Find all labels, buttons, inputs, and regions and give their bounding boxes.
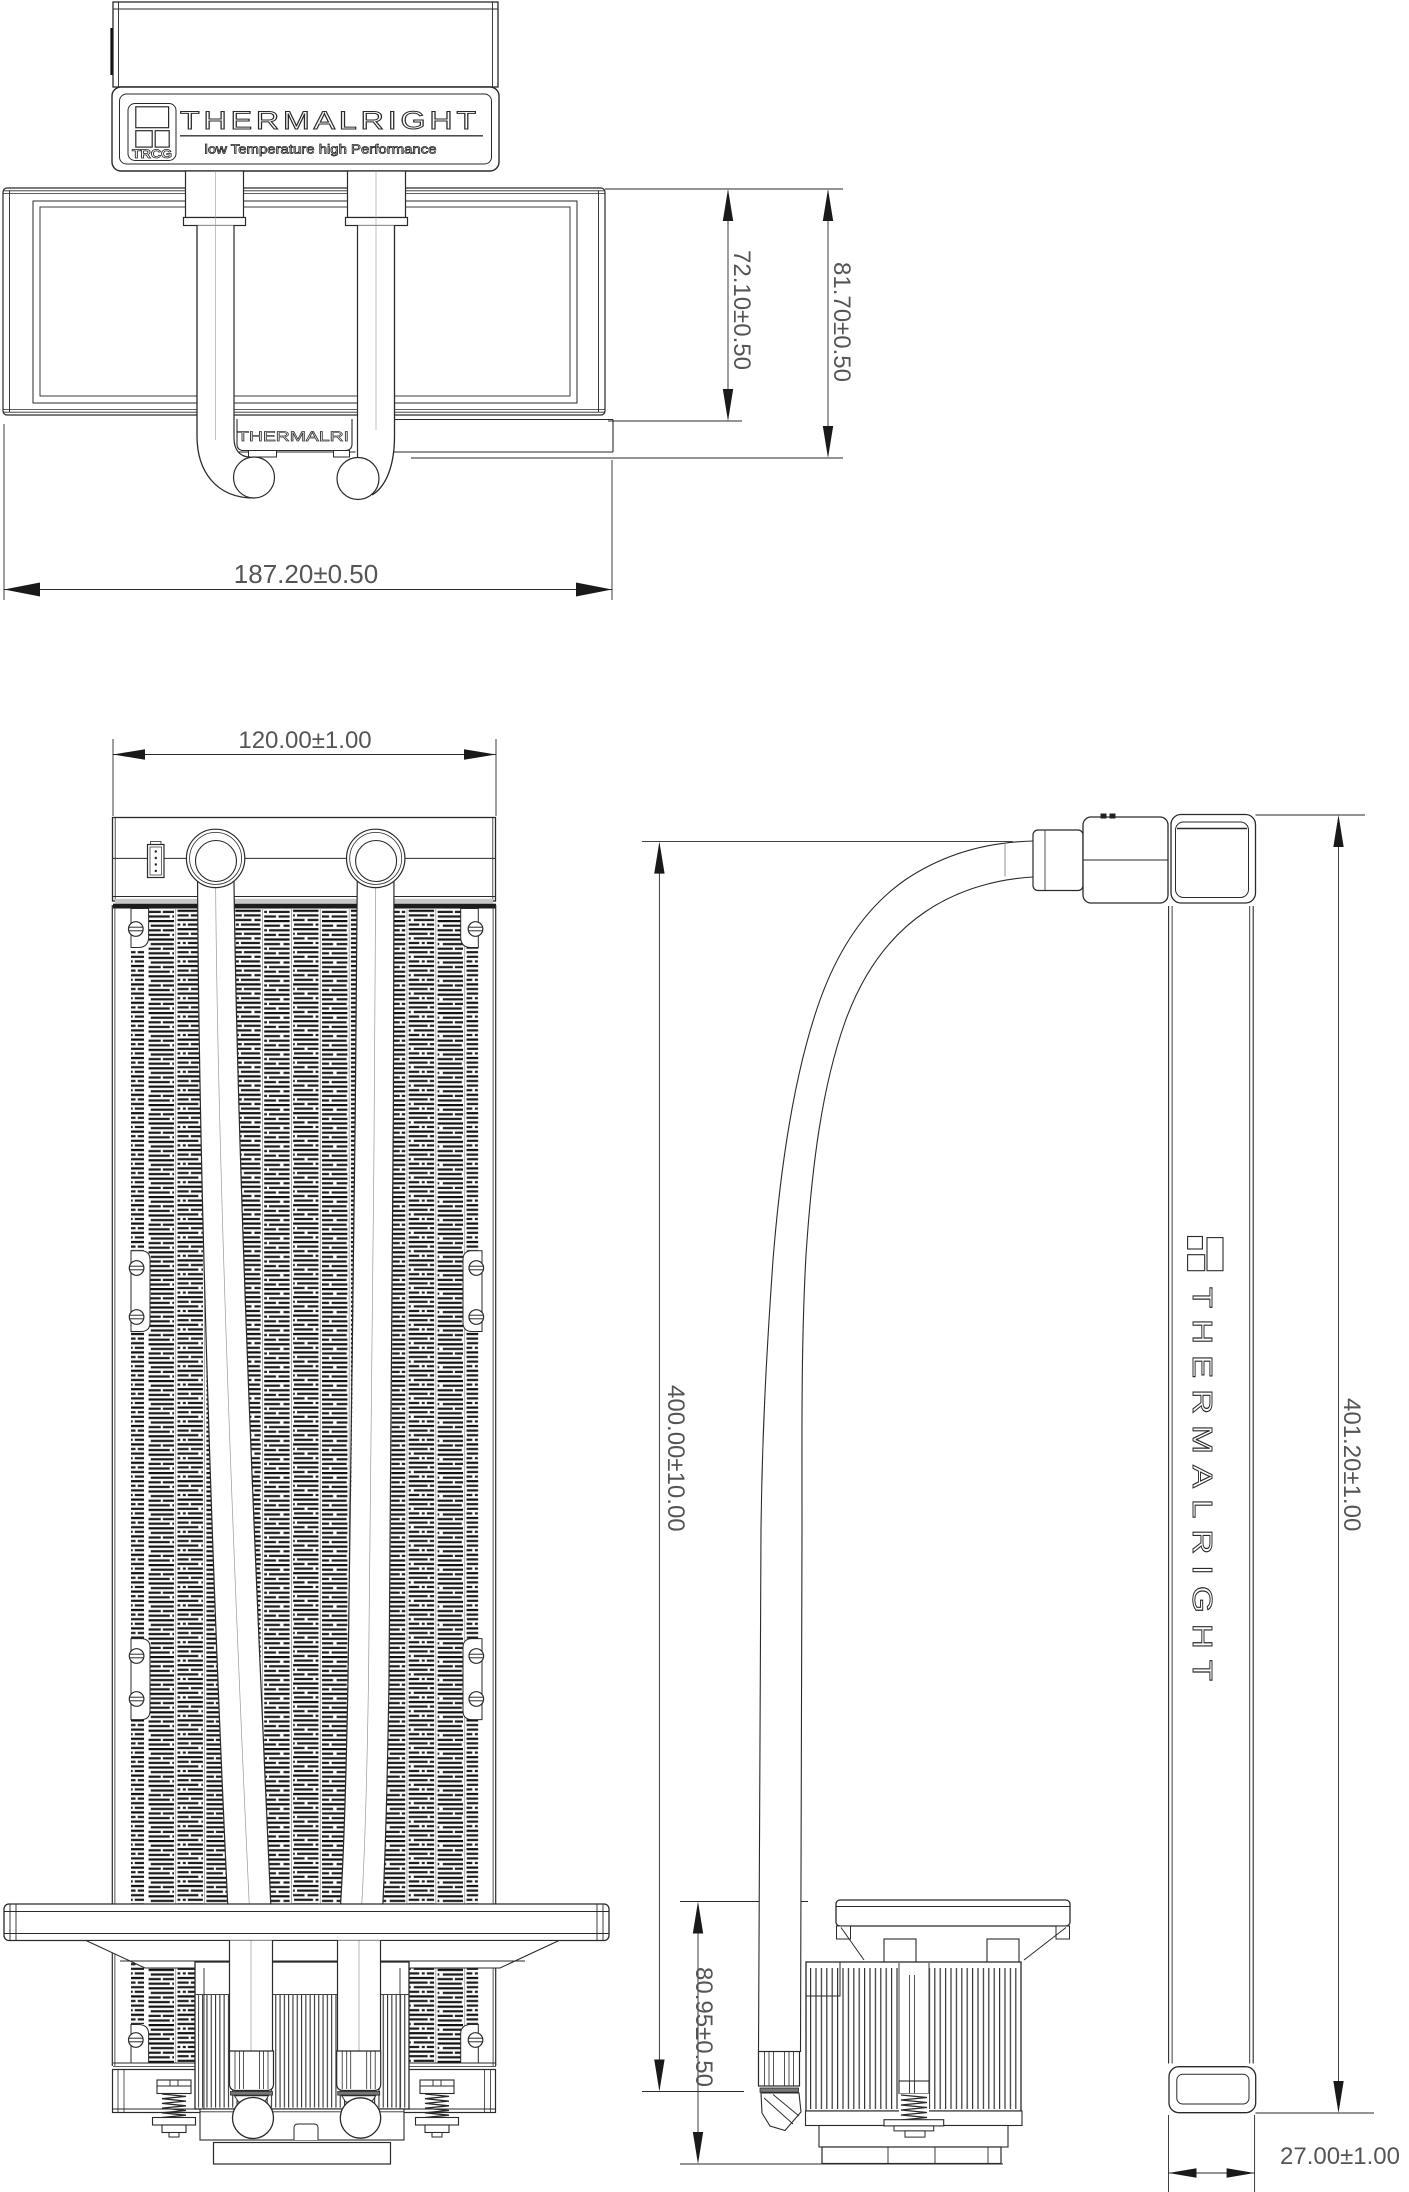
svg-text:187.20±0.50: 187.20±0.50 bbox=[234, 559, 378, 589]
svg-text:401.20±1.00: 401.20±1.00 bbox=[1338, 1398, 1365, 1531]
svg-text:400.00±10.00: 400.00±10.00 bbox=[662, 1385, 689, 1532]
svg-text:120.00±1.00: 120.00±1.00 bbox=[238, 727, 371, 754]
svg-text:THERMALRI: THERMALRI bbox=[237, 429, 349, 444]
svg-text:low Temperature high Performan: low Temperature high Performance bbox=[205, 142, 437, 157]
svg-text:THERMALRIGHT: THERMALRIGHT bbox=[180, 107, 480, 135]
svg-text:72.10±0.50: 72.10±0.50 bbox=[728, 250, 755, 370]
svg-text:THERMALRIGHT: THERMALRIGHT bbox=[1187, 1287, 1218, 1692]
svg-text:TRCG: TRCG bbox=[132, 149, 172, 161]
svg-text:27.00±1.00: 27.00±1.00 bbox=[1280, 2143, 1400, 2170]
svg-text:81.70±0.50: 81.70±0.50 bbox=[828, 262, 855, 382]
svg-text:80.95±0.50: 80.95±0.50 bbox=[690, 1967, 717, 2087]
